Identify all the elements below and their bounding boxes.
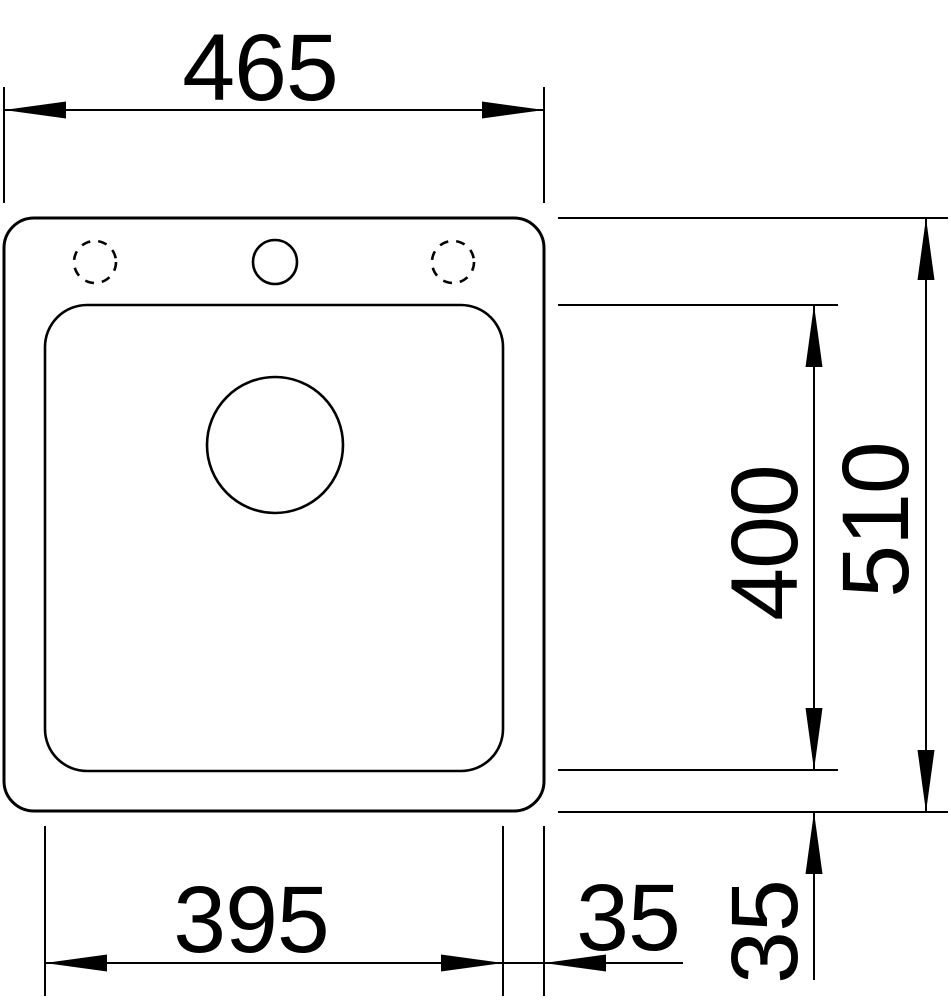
drain-circle xyxy=(207,377,343,513)
arrowhead-up xyxy=(806,305,823,367)
tap-hole-left-dashed xyxy=(74,241,116,283)
arrowhead-left xyxy=(4,102,66,119)
tap-hole-right-dashed xyxy=(432,241,474,283)
arrowhead-down xyxy=(918,750,935,812)
dimension-label-bowl-offset-right: 35 xyxy=(576,865,680,971)
arrowhead-right xyxy=(441,955,503,972)
dimension-bowl-width-and-offset: 395 35 xyxy=(45,826,683,996)
tap-hole-center xyxy=(253,240,297,284)
arrowhead-up xyxy=(806,812,823,874)
dimension-overall-width: 465 xyxy=(4,15,544,203)
arrowhead-up xyxy=(918,218,935,280)
drawing-canvas: 465 395 35 510 xyxy=(0,0,951,1000)
dimension-label-overall-width: 465 xyxy=(182,15,338,121)
sink-dimension-drawing: 465 395 35 510 xyxy=(0,0,951,1000)
sink-body-group xyxy=(4,218,544,811)
arrowhead-left xyxy=(45,955,107,972)
arrowhead-down xyxy=(806,708,823,770)
arrowhead-right xyxy=(482,102,544,119)
dimension-label-overall-depth: 510 xyxy=(823,442,929,598)
dimension-label-bowl-width: 395 xyxy=(173,867,329,973)
sink-outer-outline xyxy=(4,218,544,811)
bowl-outline xyxy=(45,305,503,771)
dimension-label-bowl-offset-bottom: 35 xyxy=(712,880,818,984)
dimension-label-bowl-depth: 400 xyxy=(712,465,818,621)
